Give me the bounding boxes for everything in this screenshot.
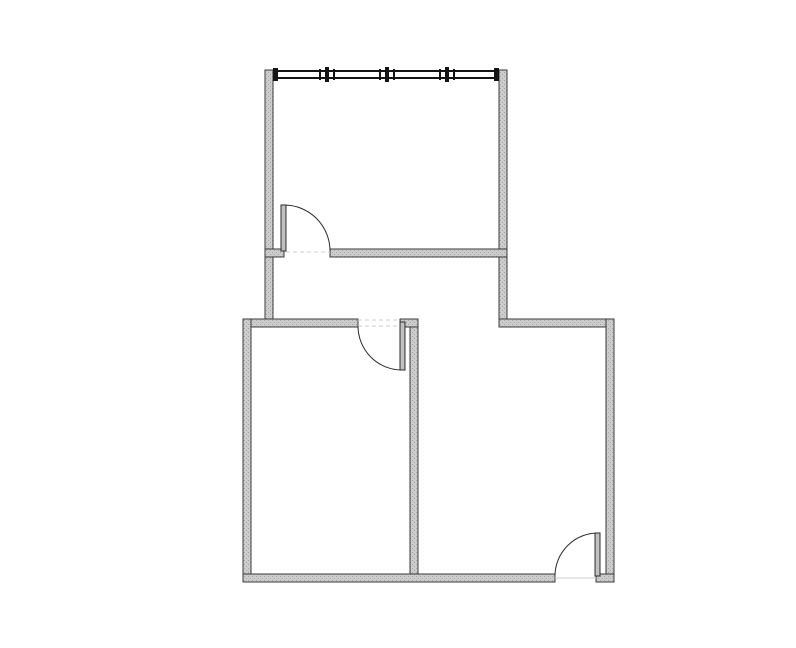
bottom-left-room-door-swing-arc <box>358 326 402 370</box>
bottom-right-room-door-swing-arc <box>555 533 598 576</box>
top-room-door-swing-arc <box>284 205 330 251</box>
floor-plan-svg <box>0 0 796 648</box>
top-window-wall-left-end-plate <box>273 68 278 81</box>
top-room-bottom-wall <box>330 249 507 257</box>
window-mullion-2 <box>385 67 389 82</box>
window-mullion-1-right-plate <box>333 69 335 80</box>
floor-plan-page <box>0 0 796 648</box>
top-window-wall-right-end-plate <box>494 68 499 81</box>
window-mullion-3-left-plate <box>439 69 441 80</box>
window-mullion-2-right-plate <box>393 69 395 80</box>
top-room-right-wall <box>499 70 507 327</box>
window-mullion-3 <box>445 67 449 82</box>
floor-plan-layers <box>243 67 614 582</box>
bottom-left-room-door-leaf <box>400 322 405 370</box>
bottom-wall <box>243 574 555 582</box>
window-mullion-1-left-plate <box>319 69 321 80</box>
window-mullion-3-right-plate <box>453 69 455 80</box>
lower-section-top-wall-left <box>243 319 358 327</box>
interior-dividing-wall <box>410 327 418 582</box>
top-room-door-leaf <box>281 205 286 251</box>
lower-section-top-wall-right <box>499 319 614 327</box>
window-mullion-2-left-plate <box>379 69 381 80</box>
window-mullion-1 <box>325 67 329 82</box>
lower-section-left-wall <box>243 319 251 582</box>
lower-section-right-wall <box>606 319 614 582</box>
bottom-right-room-door-leaf <box>595 533 600 576</box>
top-room-left-wall <box>265 70 273 327</box>
